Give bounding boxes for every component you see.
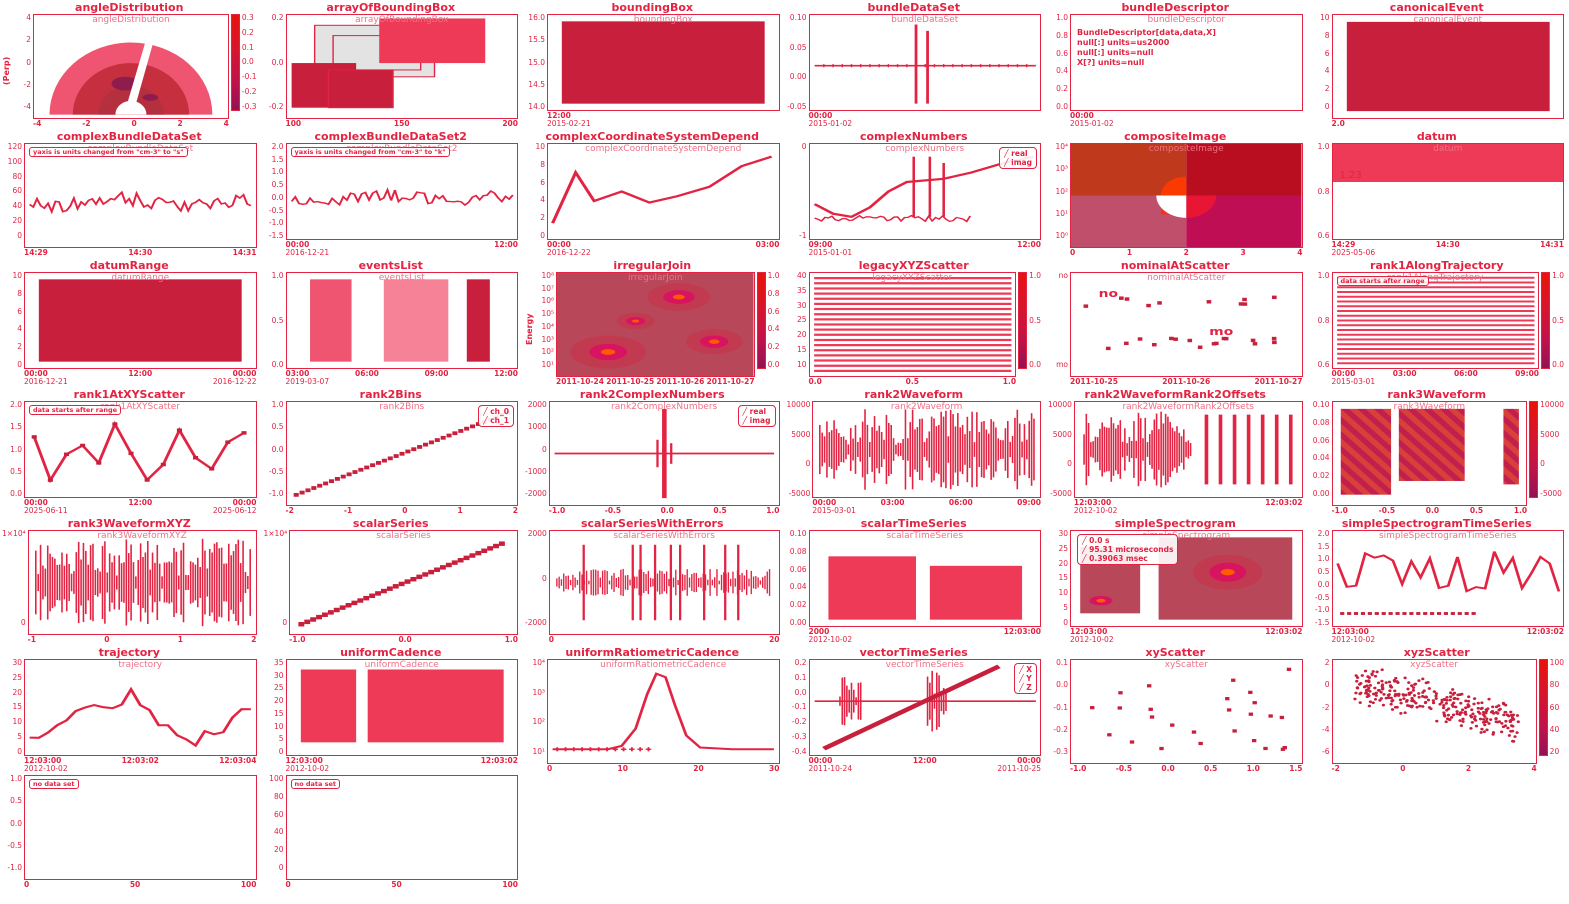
x-axis-ticks: 0102030 xyxy=(547,764,780,773)
svg-text:mo: mo xyxy=(1209,326,1233,338)
x-axis-date: 2019-03-07 xyxy=(286,378,519,386)
plot-panel-canonicalEvent: canonicalEvent 1086420 canonicalEvent 2.… xyxy=(1308,0,1569,129)
x-tick: 2011-10-25 xyxy=(1070,377,1118,386)
y-axis-ticks: 2.01.51.00.50.0-0.5-1.0-1.5 xyxy=(1310,530,1332,644)
x-tick: 1.0 xyxy=(1247,764,1260,773)
plot-area[interactable]: arrayOfBoundingBox xyxy=(286,14,519,119)
plot-area[interactable]: uniformRatiometricCadence xyxy=(547,659,780,764)
plot-title: rank2Waveform xyxy=(787,388,1042,401)
x-tick: 12:00 xyxy=(913,756,937,765)
x-tick: 1 xyxy=(1127,248,1132,257)
colorbar-tick: 20 xyxy=(1550,748,1564,756)
y-axis-ticks: 10⁴10³10²10¹10⁰ xyxy=(1048,143,1070,257)
legend-line-icon: ╱ xyxy=(483,416,490,425)
y-tick: 2.0 xyxy=(10,401,22,409)
x-tick: 12:03:02 xyxy=(1265,498,1302,507)
x-tick: 12:03:00 xyxy=(1004,627,1041,636)
y-axis-ticks: 0.10.0-0.1-0.2-0.3 xyxy=(1048,659,1070,773)
plot-content xyxy=(557,273,754,376)
plot-area[interactable]: complexBundleDataSet yaxis is units chan… xyxy=(24,143,257,248)
x-axis-date-label: 2016-12-22 xyxy=(213,378,257,386)
plot-area[interactable]: rank1AlongTrajectory data starts after r… xyxy=(1332,272,1540,369)
x-tick: 0.0 xyxy=(398,635,411,644)
colorbar-tick: 0.0 xyxy=(768,361,780,369)
x-tick: 06:00 xyxy=(355,369,379,378)
plot-panel-xyzScatter: xyzScatter 20-2-4-6 xyzScatter -2024 100… xyxy=(1308,645,1569,774)
y-tick: 14.0 xyxy=(528,103,545,111)
y-tick: no xyxy=(1059,272,1068,280)
plot-content xyxy=(810,273,1016,376)
y-tick: 2 xyxy=(17,343,22,351)
plot-title: rank2Bins xyxy=(264,388,519,401)
y-tick: 10² xyxy=(1055,188,1068,196)
colorbar-gradient xyxy=(231,14,240,111)
x-tick: 14:30 xyxy=(1436,240,1460,249)
y-tick: -1.5 xyxy=(1315,619,1330,627)
x-axis-date: 2012-10-02 xyxy=(1070,636,1303,644)
plot-area[interactable]: simpleSpectrogram ╱ 0.0 s╱ 95.31 microse… xyxy=(1070,530,1303,627)
y-tick: 0 xyxy=(1067,460,1072,468)
plot-gallery-grid: angleDistribution (Perp) 420-2-4 angleDi… xyxy=(0,0,1569,903)
plot-area[interactable]: no data set xyxy=(286,775,519,880)
y-tick: 10¹ xyxy=(1055,210,1068,218)
y-tick: 8 xyxy=(1325,32,1330,40)
y-tick: 2.0 xyxy=(1318,530,1330,538)
y-axis-ticks: 302520151050 xyxy=(1048,530,1070,644)
x-tick: 0 xyxy=(1400,764,1405,773)
colorbar-tick: -0.1 xyxy=(242,73,257,81)
plot-area[interactable]: bundleDataSet xyxy=(809,14,1042,111)
y-tick: 10¹ xyxy=(532,748,545,756)
x-tick: 2011-10-24 xyxy=(556,377,604,386)
plot-area[interactable]: rank2Bins ╱ ch_0╱ ch_1 xyxy=(286,401,519,506)
y-tick: 10 xyxy=(12,272,22,280)
x-tick: 06:00 xyxy=(1454,369,1478,378)
x-tick: 100 xyxy=(241,880,257,889)
y-tick: 10 xyxy=(797,361,807,369)
x-tick: -2 xyxy=(286,506,294,515)
y-tick: 0 xyxy=(802,143,807,151)
y-tick: 20 xyxy=(274,697,284,705)
colorbar: 1.00.50.0 xyxy=(1016,272,1041,386)
x-axis-date-label: 2015-01-02 xyxy=(809,120,853,128)
x-tick: -2 xyxy=(82,119,90,128)
x-tick: 3 xyxy=(1240,248,1245,257)
plot-title: datum xyxy=(1310,130,1565,143)
y-tick: 0.0 xyxy=(795,689,807,697)
colorbar-tick: 1.0 xyxy=(768,272,780,280)
x-axis-ticks: -1012 xyxy=(28,635,257,644)
plot-area[interactable]: bundleDescriptor BundleDescriptor[data,d… xyxy=(1070,14,1303,111)
colorbar: 0.30.20.10.0-0.1-0.2-0.3 xyxy=(229,14,257,128)
plot-title: irregularJoin xyxy=(525,259,780,272)
plot-area[interactable]: vectorTimeSeries ╱ X╱ Y╱ Z xyxy=(809,659,1042,756)
plot-area[interactable]: compositeImage xyxy=(1070,143,1303,248)
y-tick: 2.0 xyxy=(272,143,284,151)
colorbar: 10080604020 xyxy=(1537,659,1564,773)
y-tick: -4 xyxy=(1322,726,1329,734)
y-tick: 0.04 xyxy=(790,583,807,591)
plot-content xyxy=(287,660,518,755)
y-tick: 0.8 xyxy=(1056,32,1068,40)
x-tick: 2011-10-26 xyxy=(1162,377,1210,386)
colorbar-ticks: 1000050000-5000 xyxy=(1538,401,1564,498)
legend: ╱ real╱ imag xyxy=(999,147,1037,169)
plot-area[interactable]: rank2Waveform xyxy=(812,401,1041,498)
y-tick: 20 xyxy=(797,331,807,339)
x-axis-date: 2012-10-02 xyxy=(1074,507,1303,515)
plot-area[interactable]: datum 1.23 xyxy=(1332,143,1565,240)
plot-area[interactable]: xyzScatter xyxy=(1332,659,1537,764)
y-axis-ticks: 1.00.50.0-0.5-1.0 xyxy=(2,775,24,889)
colorbar-ticks: 10080604020 xyxy=(1548,659,1564,756)
plot-title: rank2ComplexNumbers xyxy=(525,388,780,401)
plot-content xyxy=(290,531,517,634)
y-tick: 15 xyxy=(797,346,807,354)
x-tick: 0.0 xyxy=(1426,506,1439,515)
plot-area[interactable]: xyScatter xyxy=(1070,659,1303,764)
colorbar-tick: 0.2 xyxy=(768,343,780,351)
plot-panel-compositeImage: compositeImage 10⁴10³10²10¹10⁰ composite… xyxy=(1046,129,1308,258)
x-axis-date: 2015-02-21 xyxy=(547,120,780,128)
legend-line-icon: ╱ xyxy=(1004,149,1011,158)
y-tick: 10⁶ xyxy=(541,297,554,305)
plot-area[interactable]: simpleSpectrogramTimeSeries xyxy=(1332,530,1565,627)
y-axis-ticks: 1000050000-5000 xyxy=(1048,401,1074,515)
plot-title: arrayOfBoundingBox xyxy=(264,1,519,14)
y-axis-ticks: 10⁴10³10²10¹ xyxy=(525,659,547,773)
plot-panel-rank3WaveformXYZ: rank3WaveformXYZ 1×10⁴0 rank3WaveformXYZ… xyxy=(0,516,262,645)
annotation-no-data-set: no data set xyxy=(29,779,79,789)
y-tick: 40 xyxy=(274,828,284,836)
y-tick: -5000 xyxy=(1050,490,1072,498)
plot-area[interactable]: eventsList xyxy=(286,272,519,369)
y-axis-ticks: 1086420 xyxy=(1310,14,1332,128)
y-tick: -0.4 xyxy=(792,748,807,756)
legend-line-icon: ╱ xyxy=(1019,665,1026,674)
y-axis-ticks: 0.100.080.060.040.020.00 xyxy=(787,530,809,644)
x-tick: 12:00 xyxy=(494,240,518,249)
y-tick: 25 xyxy=(12,674,22,682)
y-tick: 5 xyxy=(1063,604,1068,612)
plot-content xyxy=(548,144,779,239)
y-tick: 5000 xyxy=(791,431,810,439)
plot-area[interactable]: canonicalEvent xyxy=(1332,14,1565,119)
y-tick: 0.5 xyxy=(272,181,284,189)
x-tick: 12:00 xyxy=(128,369,152,378)
plot-area[interactable]: trajectory xyxy=(24,659,257,756)
x-tick: 2 xyxy=(513,506,518,515)
y-tick: 1.5 xyxy=(10,423,22,431)
x-tick: 1.0 xyxy=(1514,506,1527,515)
x-axis-ticks: 0.00.51.0 xyxy=(809,377,1017,386)
y-tick: 0.10 xyxy=(1313,401,1330,409)
plot-title: trajectory xyxy=(2,646,257,659)
plot-content xyxy=(810,531,1041,626)
plot-area[interactable]: irregularJoin xyxy=(556,272,755,377)
y-tick: 10¹ xyxy=(541,361,554,369)
annotation-yaxis-is-units: yaxis is units changed from "cm-3" to "k… xyxy=(291,147,450,157)
x-axis-date-label: 2011-10-24 xyxy=(809,765,853,773)
legend-line-icon: ╱ xyxy=(1019,674,1026,683)
x-tick: -2 xyxy=(1332,764,1340,773)
x-axis-date: 2011-10-242011-10-25 xyxy=(809,765,1042,773)
colorbar-tick: 60 xyxy=(1550,704,1564,712)
plot-area[interactable]: rank3Waveform xyxy=(1332,401,1528,506)
x-axis-date-label: 2025-05-06 xyxy=(1332,249,1376,257)
x-tick: 14:29 xyxy=(24,248,48,257)
y-tick: 0 xyxy=(26,59,31,67)
plot-panel-datum: datum 1.00.80.6 datum 1.23 14:2914:3014:… xyxy=(1308,129,1569,258)
plot-area[interactable]: scalarTimeSeries xyxy=(809,530,1042,627)
plot-panel-complexBundleDataSet2: complexBundleDataSet2 2.01.51.00.50.0-0.… xyxy=(262,129,524,258)
plot-panel-rank3Waveform: rank3Waveform 0.100.080.060.040.020.00 r… xyxy=(1308,387,1569,516)
legend-entry: ╱ 95.31 microseconds xyxy=(1082,545,1173,554)
x-tick: 0.5 xyxy=(1204,764,1217,773)
y-axis-ticks: 1×10⁴0 xyxy=(264,530,290,644)
plot-area[interactable]: no data set xyxy=(24,775,257,880)
plot-content xyxy=(810,15,1041,110)
y-tick: 0.5 xyxy=(1318,568,1330,576)
y-tick: 2 xyxy=(1325,85,1330,93)
x-axis-ticks: -1.0-0.50.00.51.0 xyxy=(1332,506,1528,515)
x-tick: 14:31 xyxy=(233,248,257,257)
x-axis-ticks: -1.0-0.50.00.51.0 xyxy=(549,506,780,515)
y-tick: 2000 xyxy=(528,401,547,409)
plot-content xyxy=(1333,144,1564,239)
y-tick: 0.0 xyxy=(1056,103,1068,111)
y-tick: 1.0 xyxy=(10,446,22,454)
plot-area[interactable]: rank3WaveformXYZ xyxy=(28,530,257,635)
y-tick: 6 xyxy=(540,179,545,187)
y-tick: 35 xyxy=(274,659,284,667)
colorbar-tick: 1.0 xyxy=(1029,272,1041,280)
plot-area[interactable]: boundingBox xyxy=(547,14,780,111)
y-tick: -2000 xyxy=(525,619,547,627)
plot-panel-boundingBox: boundingBox 16.015.515.014.514.0 boundin… xyxy=(523,0,785,129)
y-tick: -1.5 xyxy=(269,232,284,240)
plot-area[interactable]: nominalAtScatter nomo xyxy=(1070,272,1303,377)
y-tick: 2 xyxy=(540,214,545,222)
plot-panel-trajectory: trajectory 302520151050 trajectory 12:03… xyxy=(0,645,262,774)
y-tick: -1 xyxy=(799,232,806,240)
y-tick: 10000 xyxy=(787,401,811,409)
y-tick: 0.10 xyxy=(790,530,807,538)
x-axis-date-label: 2015-01-01 xyxy=(809,249,853,257)
y-tick: 8 xyxy=(17,290,22,298)
colorbar: 1.00.80.60.40.20.0 xyxy=(755,272,780,386)
y-tick: 0.0 xyxy=(10,820,22,828)
y-axis-ticks: 120100806040200 xyxy=(2,143,24,257)
y-axis-ticks: 20000-2000 xyxy=(525,530,549,644)
x-axis-date: 2012-10-02 xyxy=(24,765,257,773)
x-axis-date-label: 2015-03-01 xyxy=(812,507,856,515)
plot-panel-vectorTimeSeries: vectorTimeSeries 0.20.10.0-0.1-0.2-0.3-0… xyxy=(785,645,1047,774)
plot-panel-emptyPanel2: 100806040200 no data set 050100 xyxy=(262,774,524,903)
plot-panel-eventsList: eventsList 1.00.50.0 eventsList 03:0006:… xyxy=(262,258,524,387)
plot-area[interactable]: datumRange xyxy=(24,272,257,369)
x-tick: 2 xyxy=(178,119,183,128)
y-tick: 1.5 xyxy=(272,156,284,164)
y-tick: 40 xyxy=(12,202,22,210)
plot-title: simpleSpectrogram xyxy=(1048,517,1303,530)
plot-content xyxy=(548,15,779,110)
y-tick: -0.1 xyxy=(1053,704,1068,712)
plot-panel-rank2Bins: rank2Bins 1.00.50.0-0.5-1.0 rank2Bins ╱ … xyxy=(262,387,524,516)
plot-area[interactable]: scalarSeries xyxy=(289,530,518,635)
plot-area[interactable]: scalarSeriesWithErrors xyxy=(549,530,780,635)
x-tick: 2 xyxy=(251,635,256,644)
plot-area[interactable]: rank2WaveformRank2Offsets xyxy=(1074,401,1303,498)
x-tick: 20 xyxy=(769,635,779,644)
x-axis-date-label: 2011-10-25 xyxy=(997,765,1041,773)
y-tick: -1.0 xyxy=(1315,606,1330,614)
y-axis-ticks: 1.00.80.6 xyxy=(1310,143,1332,257)
y-tick: -1.0 xyxy=(269,219,284,227)
x-tick: 09:00 xyxy=(425,369,449,378)
y-tick: 0 xyxy=(282,619,287,627)
x-axis-ticks: -1.00.01.0 xyxy=(289,635,518,644)
legend-entry: ╱ imag xyxy=(743,416,771,425)
plot-area[interactable]: rank1AtXYScatter data starts after range xyxy=(24,401,257,498)
y-tick: -0.2 xyxy=(792,718,807,726)
y-tick: -0.5 xyxy=(269,468,284,476)
y-tick: -1.0 xyxy=(269,490,284,498)
x-tick: 2 xyxy=(1184,248,1189,257)
svg-text:no: no xyxy=(1099,288,1118,300)
y-tick: 0.08 xyxy=(1313,419,1330,427)
x-axis-date: 2016-12-22 xyxy=(547,249,780,257)
plot-content xyxy=(1333,15,1564,118)
y-tick: 0.06 xyxy=(790,566,807,574)
y-tick: 30 xyxy=(274,672,284,680)
y-tick: 20 xyxy=(12,689,22,697)
x-tick: 12:03:04 xyxy=(219,756,256,765)
x-axis-date-label: 2012-10-02 xyxy=(24,765,68,773)
plot-area[interactable]: complexBundleDataSet2 yaxis is units cha… xyxy=(286,143,519,240)
plot-panel-bundleDescriptor: bundleDescriptor 1.00.80.60.40.20.0 bund… xyxy=(1046,0,1308,129)
x-tick: 0 xyxy=(1070,248,1075,257)
x-tick: 2011-10-27 xyxy=(1255,377,1303,386)
datum-value: 1.23 xyxy=(1340,170,1362,181)
y-tick: 0.6 xyxy=(1056,50,1068,58)
legend-entry: ╱ ch_1 xyxy=(483,416,509,425)
colorbar-tick: 5000 xyxy=(1540,431,1564,439)
y-tick: -0.5 xyxy=(1315,594,1330,602)
plot-content xyxy=(550,531,779,634)
y-tick: 1.0 xyxy=(10,775,22,783)
y-tick: 0 xyxy=(17,361,22,369)
y-axis-ticks: 1.00.50.0 xyxy=(264,272,286,386)
x-tick: 1.5 xyxy=(1289,764,1302,773)
x-axis-date: 2025-06-112025-06-12 xyxy=(24,507,257,515)
plot-content xyxy=(813,402,1040,497)
y-tick: 0.1 xyxy=(1056,659,1068,667)
x-tick: -1.0 xyxy=(289,635,305,644)
x-tick: 0 xyxy=(402,506,407,515)
y-tick: 0 xyxy=(806,460,811,468)
y-tick: 0.5 xyxy=(272,317,284,325)
colorbar-tick: 0.2 xyxy=(242,29,257,37)
y-tick: 0.02 xyxy=(1313,472,1330,480)
plot-area[interactable]: angleDistribution xyxy=(33,14,229,119)
y-tick: 0.00 xyxy=(1313,490,1330,498)
x-tick: 2011-10-25 xyxy=(606,377,654,386)
y-tick: 10⁴ xyxy=(532,659,545,667)
y-tick: 0.2 xyxy=(1056,85,1068,93)
colorbar-tick: 0.5 xyxy=(1029,317,1041,325)
y-tick: -2 xyxy=(24,81,31,89)
colorbar-tick: -0.2 xyxy=(242,88,257,96)
x-tick: 100 xyxy=(286,119,302,128)
x-tick: 0 xyxy=(549,635,554,644)
plot-panel-irregularJoin: irregularJoin Energy 10⁸10⁷10⁶10⁵10⁴10³1… xyxy=(523,258,785,387)
y-tick: -0.5 xyxy=(7,842,22,850)
x-tick: 1 xyxy=(178,635,183,644)
x-axis-date: 2012-10-02 xyxy=(286,765,519,773)
x-tick: -0.5 xyxy=(1379,506,1395,515)
plot-area[interactable]: legacyXYZScatter xyxy=(809,272,1017,377)
y-tick: 80 xyxy=(12,173,22,181)
x-tick: 09:00 xyxy=(1017,498,1041,507)
x-tick: 03:00 xyxy=(881,498,905,507)
plot-area[interactable]: uniformCadence xyxy=(286,659,519,756)
plot-panel-scalarSeries: scalarSeries 1×10⁴0 scalarSeries -1.00.0… xyxy=(262,516,524,645)
x-tick: 03:00 xyxy=(1393,369,1417,378)
plot-content xyxy=(1333,402,1527,505)
plot-content xyxy=(1333,660,1536,763)
legend-entry: ╱ real xyxy=(1004,149,1032,158)
plot-content xyxy=(287,15,518,118)
colorbar-ticks: 1.00.50.0 xyxy=(1550,272,1564,369)
y-tick: 0.0 xyxy=(272,361,284,369)
y-tick: 6 xyxy=(1325,50,1330,58)
y-tick: 0.0 xyxy=(272,446,284,454)
y-tick: 0.6 xyxy=(1318,232,1330,240)
plot-title: datumRange xyxy=(2,259,257,272)
y-tick: 0 xyxy=(1063,619,1068,627)
y-tick: 0.05 xyxy=(790,44,807,52)
plot-title: compositeImage xyxy=(1048,130,1303,143)
y-tick: 1.0 xyxy=(272,272,284,280)
plot-area[interactable]: complexCoordinateSystemDepend xyxy=(547,143,780,240)
plot-title: canonicalEvent xyxy=(1310,1,1565,14)
y-tick: 0.06 xyxy=(1313,437,1330,445)
plot-area[interactable]: complexNumbers ╱ real╱ imag xyxy=(809,143,1042,240)
y-axis-ticks: nomo xyxy=(1048,272,1070,386)
plot-title: rank3Waveform xyxy=(1310,388,1565,401)
x-tick: 0 xyxy=(104,635,109,644)
colorbar-ticks: 0.30.20.10.0-0.1-0.2-0.3 xyxy=(240,14,257,111)
colorbar-tick: -5000 xyxy=(1540,490,1564,498)
y-tick: 0.5 xyxy=(10,797,22,805)
colorbar-tick: 10000 xyxy=(1540,401,1564,409)
plot-content xyxy=(810,660,1041,755)
y-axis-ticks: 0-1 xyxy=(787,143,809,257)
x-tick: 2011-10-26 xyxy=(656,377,704,386)
y-tick: 0.0 xyxy=(1318,581,1330,589)
y-tick: 0.2 xyxy=(795,659,807,667)
legend-entry: ╱ imag xyxy=(1004,158,1032,167)
x-tick: 2 xyxy=(1466,764,1471,773)
plot-area[interactable]: rank2ComplexNumbers ╱ real╱ imag xyxy=(549,401,780,506)
x-tick: -0.5 xyxy=(1116,764,1132,773)
colorbar-tick: 0.4 xyxy=(768,325,780,333)
x-tick: 200 xyxy=(502,119,518,128)
y-tick: 20 xyxy=(12,217,22,225)
x-tick: 50 xyxy=(391,880,401,889)
y-tick: 1.0 xyxy=(272,401,284,409)
